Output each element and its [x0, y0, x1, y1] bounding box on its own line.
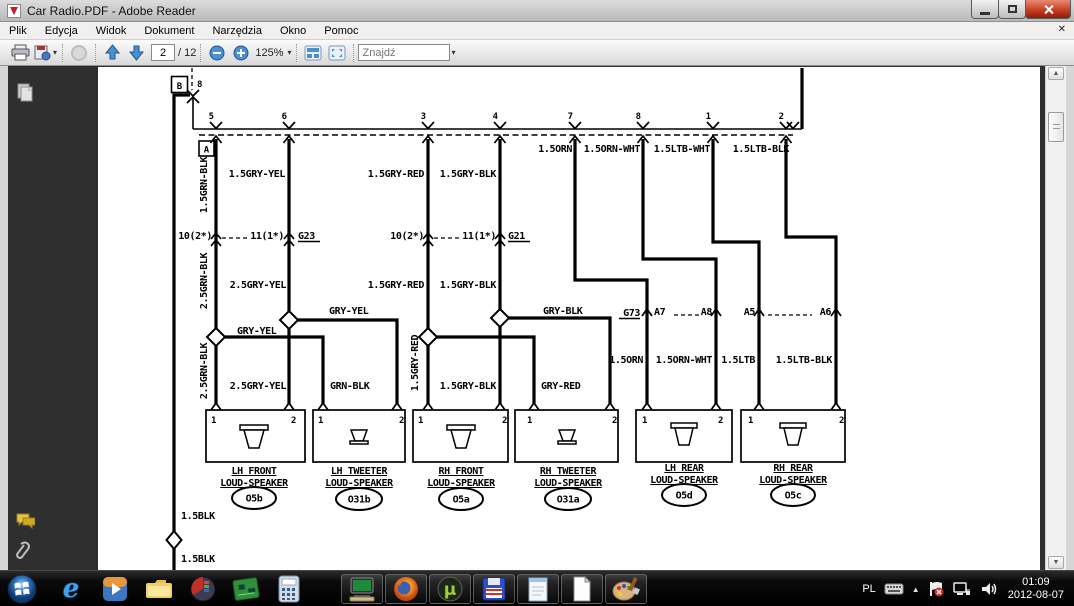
svg-text:2: 2: [612, 416, 617, 426]
search-input[interactable]: [358, 44, 450, 61]
w5-pin-label: A7: [654, 307, 666, 318]
window-title: Car Radio.PDF - Adobe Reader: [27, 4, 196, 18]
menu-narzedzia[interactable]: Narzędzia: [203, 23, 271, 39]
speaker-lh-front: 1 2 LH FRONT LOUD-SPEAKER O5b: [206, 410, 305, 509]
speaker-lh-rear: 1 2 LH REAR LOUD-SPEAKER O5d: [636, 410, 732, 506]
w1-branch-drop-label: GRN-BLK: [330, 381, 370, 392]
tray-expand-icon[interactable]: ▲: [912, 585, 920, 594]
svg-text:µ: µ: [444, 580, 457, 600]
svg-text:O5c: O5c: [785, 491, 802, 502]
scrolling-mode-button[interactable]: [302, 42, 324, 64]
w2-ground-label: G23: [298, 231, 315, 242]
svg-text:4: 4: [493, 112, 499, 122]
adobe-reader-icon: [7, 4, 21, 18]
save-copy-button[interactable]: ▾: [33, 42, 57, 64]
svg-text:1: 1: [211, 416, 216, 426]
zoom-level-value: 125%: [255, 47, 283, 59]
connector-b-label: B: [177, 82, 183, 92]
maximize-button[interactable]: [998, 0, 1026, 19]
w1-mid-label: 2.5GRN-BLK: [199, 253, 210, 310]
menu-widok[interactable]: Widok: [87, 23, 136, 39]
w8-top-label: 1.5LTB-BLK: [733, 144, 790, 155]
wire-label-main-2: 1.5BLK: [181, 554, 215, 565]
svg-text:LH REAR: LH REAR: [664, 463, 705, 474]
w5-top-label: 1.5ORN: [538, 144, 572, 155]
previous-view-button-disabled: [68, 42, 90, 64]
svg-text:2: 2: [839, 416, 844, 426]
svg-text:2: 2: [502, 416, 507, 426]
w3-connector-label: 10(2*): [390, 231, 424, 242]
w7-low-label: 1.5LTB: [721, 355, 755, 366]
minimize-button[interactable]: [971, 0, 999, 19]
wire-end-chevrons: [211, 403, 841, 410]
page-up-icon: [104, 44, 121, 61]
internet-explorer-icon: e: [63, 574, 80, 604]
taskbar-terminal[interactable]: [341, 574, 383, 604]
terminal-icon: [348, 576, 376, 602]
wire-label-main-1: 1.5BLK: [181, 511, 215, 522]
start-button[interactable]: [2, 574, 42, 604]
close-button[interactable]: [1025, 0, 1071, 19]
svg-text:LH TWEETER: LH TWEETER: [331, 466, 389, 477]
menu-edycja[interactable]: Edycja: [36, 23, 87, 39]
zoom-in-icon: [233, 45, 249, 61]
previous-page-button[interactable]: [101, 42, 123, 64]
svg-text:1: 1: [418, 416, 423, 426]
svg-text:RH REAR: RH REAR: [773, 463, 814, 474]
w2-top-label: 1.5GRY-YEL: [229, 169, 286, 180]
taskbar-floppy-app[interactable]: [473, 574, 515, 604]
w3-rot-label: 1.5GRY-RED: [410, 335, 421, 392]
connector-a-label: A: [204, 146, 210, 156]
w1-top-label: 1.5GRN-BLK: [199, 157, 210, 214]
speaker-rh-front: 1 2 RH FRONT LOUD-SPEAKER O5a: [413, 410, 508, 510]
page-total-label: / 12: [178, 47, 196, 59]
desktop: Car Radio.PDF - Adobe Reader Plik Edycja…: [0, 0, 1074, 606]
media-player-icon: [101, 575, 129, 603]
scrollbar-thumb[interactable]: [1048, 112, 1064, 142]
w3-mid-label: 1.5GRY-RED: [368, 280, 425, 291]
svg-text:1: 1: [527, 416, 532, 426]
w4-top-label: 1.5GRY-BLK: [440, 169, 497, 180]
svg-text:1: 1: [642, 416, 647, 426]
zoom-in-button[interactable]: [230, 42, 252, 64]
w6-pin-label: A8: [701, 307, 713, 318]
w7-pin-label: A5: [744, 307, 756, 318]
volume-icon[interactable]: [980, 581, 998, 597]
svg-text:6: 6: [282, 112, 287, 122]
notepad-icon: [526, 575, 550, 603]
printer-icon: [11, 44, 30, 61]
connector-b-pin: 8: [197, 80, 202, 90]
taskbar: e: [0, 570, 1074, 606]
svg-text:1: 1: [706, 112, 711, 122]
circuit-board-icon: [232, 576, 260, 602]
page-down-icon: [128, 44, 145, 61]
svg-text:2: 2: [779, 112, 784, 122]
scroll-down-button[interactable]: ▼: [1048, 556, 1064, 569]
floppy-disk-icon: [481, 576, 507, 602]
w5-ground-label: G73: [623, 308, 640, 319]
svg-text:3: 3: [421, 112, 426, 122]
w5-low-label: 1.5ORN: [609, 355, 643, 366]
action-center-icon[interactable]: [928, 581, 944, 597]
svg-text:1: 1: [748, 416, 753, 426]
windows-start-icon: [6, 573, 38, 605]
w6-low-label: 1.5ORN-WHT: [656, 355, 713, 366]
w3-top-label: 1.5GRY-RED: [368, 169, 425, 180]
w1-connector-label: 10(2*): [178, 231, 212, 242]
document-area: B 8 1.5BLK 1.5BLK A 5 6 3 4 7 8 1: [0, 66, 1074, 570]
folder-icon: [144, 576, 174, 602]
w2-connector-label: 11(1*): [250, 231, 284, 242]
fit-window-button[interactable]: [326, 42, 348, 64]
svg-text:O31a: O31a: [557, 495, 580, 506]
taskbar-utorrent[interactable]: µ: [429, 574, 471, 604]
paint-icon: [611, 575, 641, 603]
svg-text:O5b: O5b: [246, 494, 263, 505]
w4-mid-label: 1.5GRY-BLK: [440, 280, 497, 291]
menu-bar: Plik Edycja Widok Dokument Narzędzia Okn…: [0, 22, 1074, 40]
keyboard-layout-icon[interactable]: [884, 582, 904, 596]
menu-dokument[interactable]: Dokument: [135, 23, 203, 39]
w2-low-label: 2.5GRY-YEL: [230, 381, 287, 392]
taskbar-media-classic[interactable]: [182, 574, 224, 604]
vertical-scrollbar[interactable]: ▲ ▼: [1045, 66, 1066, 570]
w4-ground-label: G21: [508, 231, 525, 242]
utorrent-icon: µ: [436, 575, 464, 603]
taskbar-document[interactable]: [561, 574, 603, 604]
svg-text:1: 1: [318, 416, 323, 426]
taskbar-calculator[interactable]: [268, 574, 310, 604]
w3-branch-drop-label: GRY-RED: [541, 381, 581, 392]
w2-mid-label: 2.5GRY-YEL: [230, 280, 287, 291]
print-button[interactable]: [9, 42, 31, 64]
w4-low-label: 1.5GRY-BLK: [440, 381, 497, 392]
tray-time: 01:09: [1022, 576, 1050, 588]
toolbar: ▾ / 12: [0, 40, 1074, 66]
scrolling-mode-icon: [304, 45, 322, 61]
speaker-lh-tweeter: 1 2 LH TWEETER LOUD-SPEAKER O31b: [313, 410, 405, 510]
taskbar-paint[interactable]: [605, 574, 647, 604]
w1-branch-label: GRY-YEL: [237, 326, 277, 337]
svg-text:O31b: O31b: [348, 495, 371, 506]
next-page-button[interactable]: [125, 42, 147, 64]
title-bar: Car Radio.PDF - Adobe Reader: [0, 0, 1074, 22]
svg-text:O5d: O5d: [676, 491, 693, 502]
clock[interactable]: 01:09 2012-08-07: [1008, 576, 1064, 602]
w8-low-label: 1.5LTB-BLK: [776, 355, 833, 366]
w8-pin-label: A6: [820, 307, 832, 318]
w1-low-label: 2.5GRN-BLK: [199, 343, 210, 400]
firefox-icon: [392, 575, 420, 603]
system-tray: PL ▲ 01: [858, 571, 1074, 606]
menubar-close-icon[interactable]: ✕: [1058, 24, 1066, 35]
svg-text:RH FRONT: RH FRONT: [439, 466, 484, 477]
calculator-icon: [277, 575, 301, 603]
svg-text:RH TWEETER: RH TWEETER: [540, 466, 598, 477]
svg-text:7: 7: [568, 112, 573, 122]
svg-text:O5a: O5a: [453, 495, 470, 506]
network-icon[interactable]: [952, 581, 972, 597]
taskbar-ie[interactable]: e: [50, 574, 92, 604]
scroll-up-button[interactable]: ▲: [1048, 67, 1064, 80]
w4-connector-label: 11(1*): [462, 231, 496, 242]
language-indicator[interactable]: PL: [862, 583, 875, 595]
media-classic-icon: [189, 575, 217, 603]
menu-pomoc[interactable]: Pomoc: [315, 23, 367, 39]
svg-text:2: 2: [399, 416, 404, 426]
taskbar-notepad[interactable]: [517, 574, 559, 604]
bus-pin-numbers: 5 6 3 4 7 8 1 2: [209, 112, 784, 122]
rear-connector-row: [642, 309, 841, 316]
speaker-rh-tweeter: 1 2 RH TWEETER LOUD-SPEAKER O31a: [515, 410, 618, 510]
taskbar-firefox[interactable]: [385, 574, 427, 604]
zoom-out-icon: [209, 45, 225, 61]
page-number-input[interactable]: [151, 44, 175, 61]
taskbar-wmp[interactable]: [94, 574, 136, 604]
zoom-out-button[interactable]: [206, 42, 228, 64]
previous-view-icon: [70, 45, 88, 61]
search-dropdown-caret[interactable]: ▾: [452, 48, 456, 57]
fit-window-icon: [328, 45, 346, 61]
menu-okno[interactable]: Okno: [271, 23, 315, 39]
svg-text:5: 5: [209, 112, 214, 122]
w4-branch-label: GRY-BLK: [543, 306, 583, 317]
speaker-rh-rear: 1 2 RH REAR LOUD-SPEAKER O5c: [741, 410, 845, 506]
document-icon: [570, 575, 594, 603]
save-dropdown-caret[interactable]: ▾: [53, 48, 57, 57]
tray-date: 2012-08-07: [1008, 589, 1064, 601]
wiring-diagram: B 8 1.5BLK 1.5BLK A 5 6 3 4 7 8 1: [0, 66, 1074, 570]
w2-branch-label: GRY-YEL: [329, 306, 369, 317]
svg-text:8: 8: [636, 112, 641, 122]
svg-text:2: 2: [718, 416, 723, 426]
w6-top-label: 1.5ORN-WHT: [584, 144, 641, 155]
w7-top-label: 1.5LTB-WHT: [654, 144, 711, 155]
save-icon: [33, 44, 51, 61]
zoom-dropdown-caret[interactable]: ▾: [288, 48, 292, 57]
taskbar-circuit-app[interactable]: [225, 574, 267, 604]
svg-text:LH FRONT: LH FRONT: [232, 466, 277, 477]
menu-plik[interactable]: Plik: [0, 23, 36, 39]
svg-text:2: 2: [291, 416, 296, 426]
taskbar-explorer[interactable]: [138, 574, 180, 604]
